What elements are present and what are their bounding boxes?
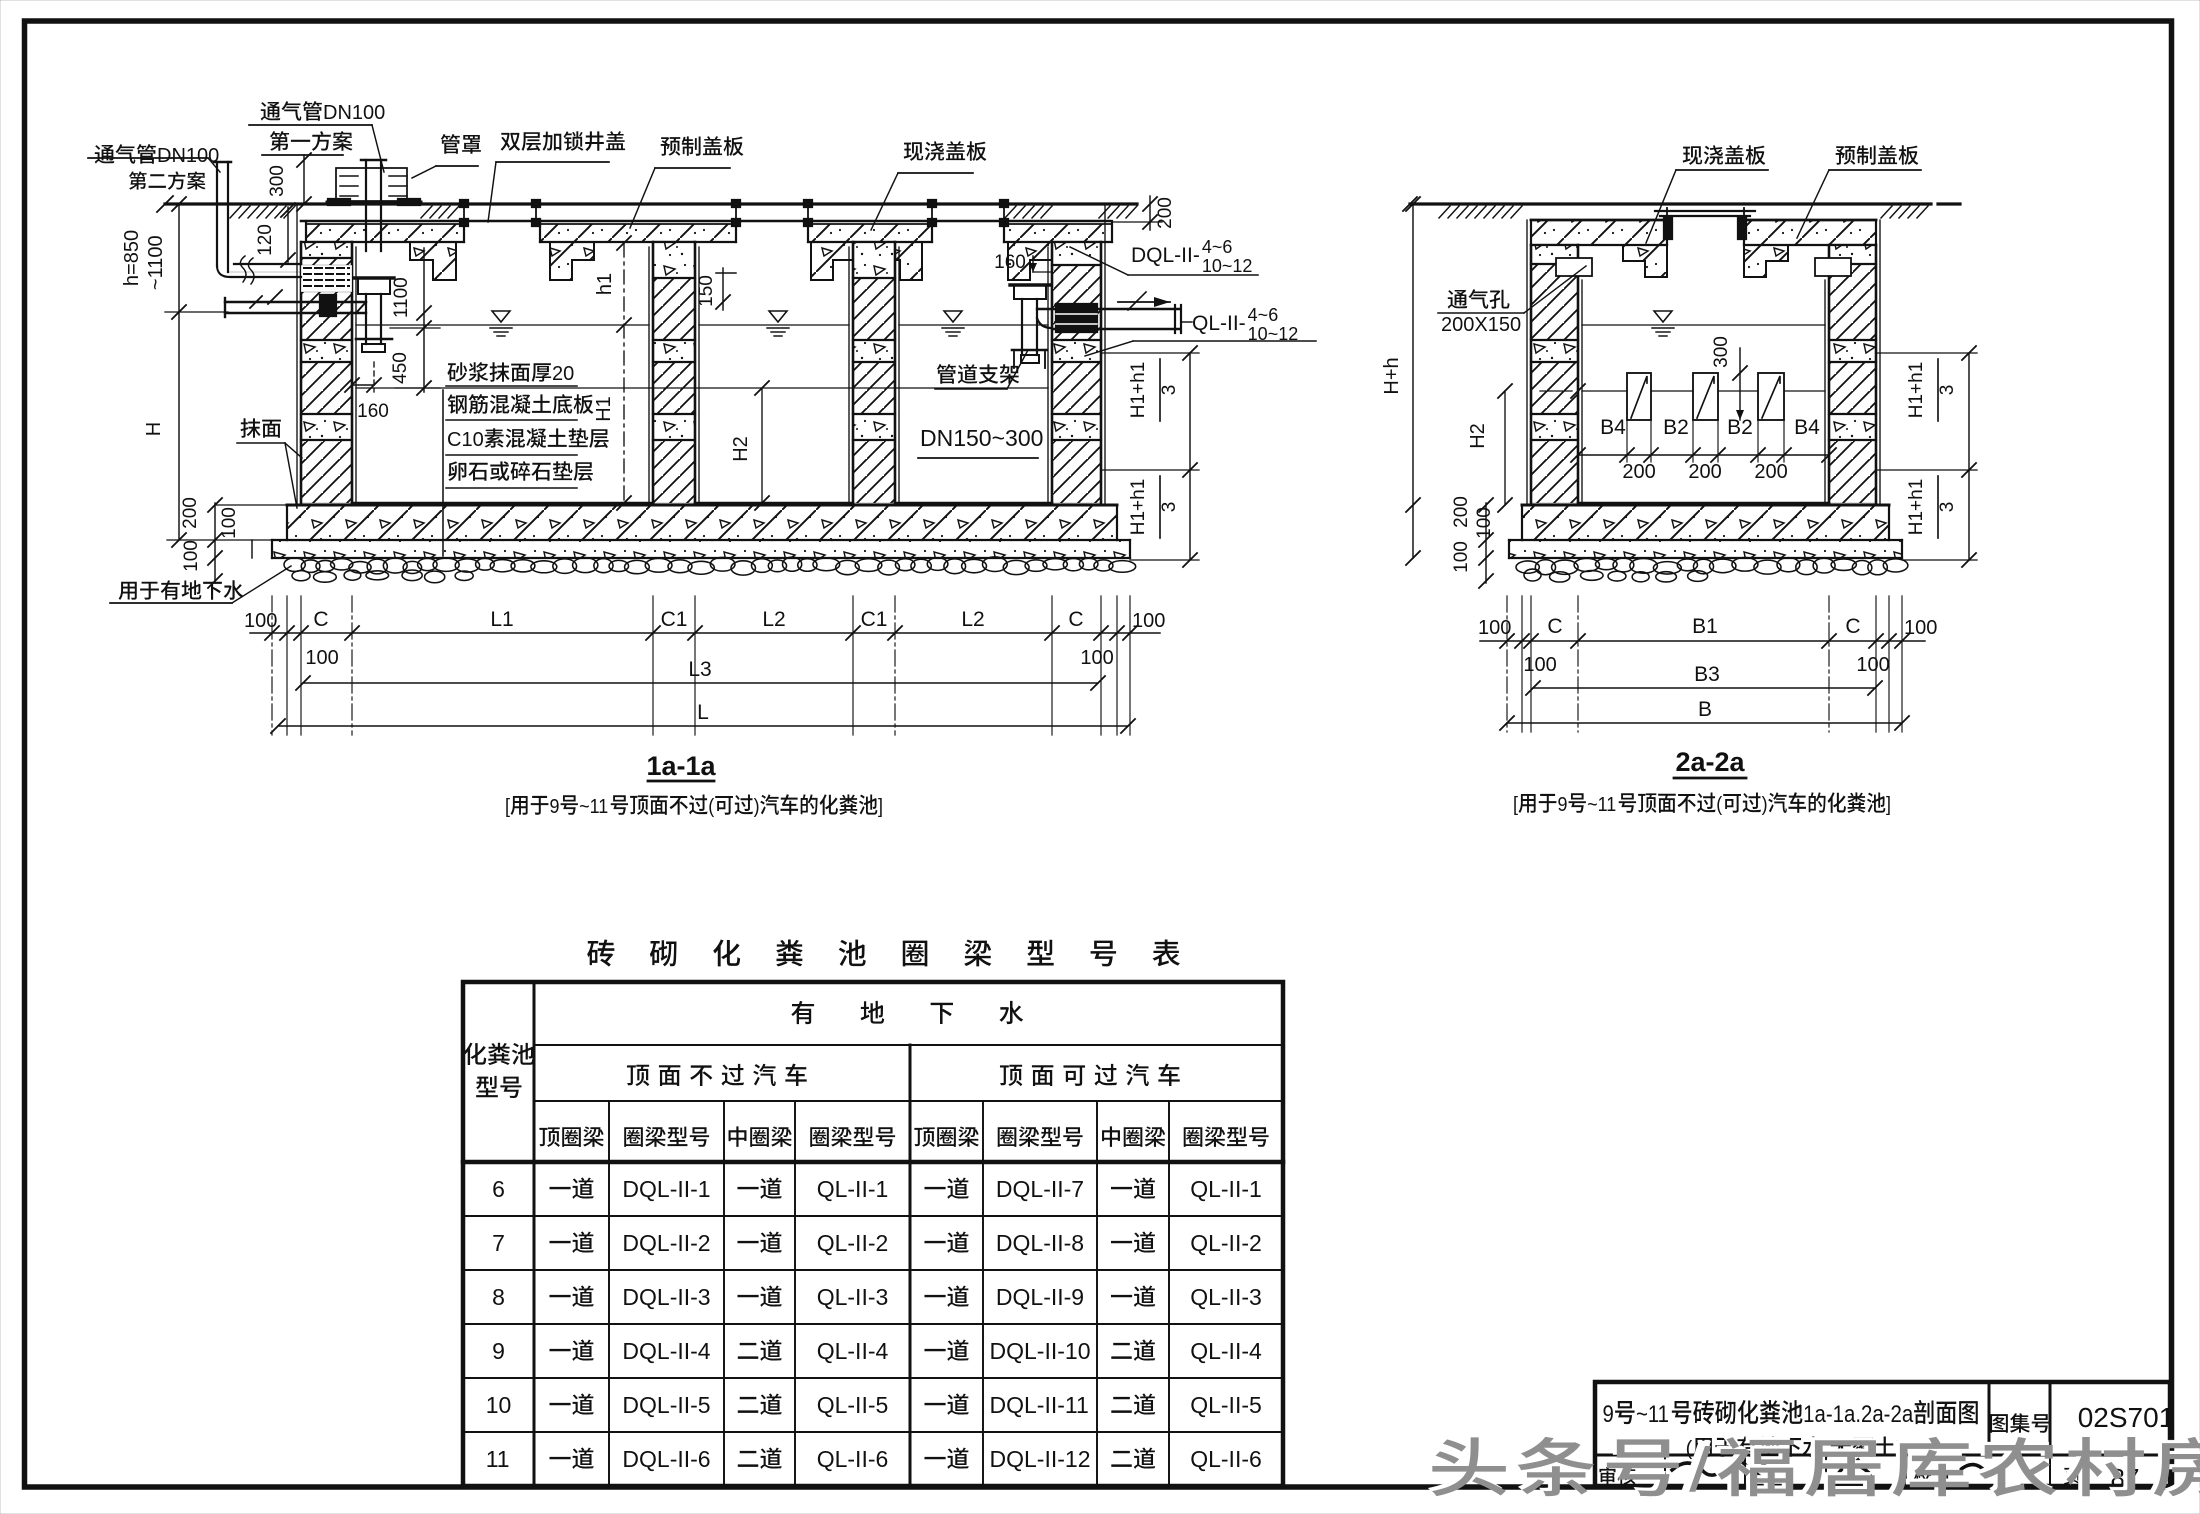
svg-text:L: L	[697, 701, 709, 724]
svg-text:L2: L2	[961, 608, 984, 631]
svg-text:DQL-II-3: DQL-II-3	[622, 1284, 710, 1310]
svg-text:100: 100	[1474, 507, 1495, 539]
svg-text:QL-II-2: QL-II-2	[1190, 1230, 1262, 1256]
svg-text:450: 450	[390, 352, 411, 384]
svg-text:DN100: DN100	[323, 102, 385, 124]
svg-text:H+h: H+h	[1381, 357, 1403, 394]
svg-text:C10: C10	[447, 429, 484, 451]
svg-text:100: 100	[1523, 654, 1556, 676]
svg-text:QL-II-5: QL-II-5	[817, 1392, 889, 1418]
svg-text:200X150: 200X150	[1441, 314, 1521, 336]
svg-text:4~6: 4~6	[1248, 305, 1279, 325]
svg-text:H1+h1: H1+h1	[1128, 479, 1149, 536]
svg-text:QL-II-1: QL-II-1	[1190, 1176, 1262, 1202]
svg-text:L2: L2	[762, 608, 785, 631]
svg-text:100: 100	[305, 647, 338, 669]
svg-text:B3: B3	[1694, 663, 1720, 686]
svg-text:L3: L3	[688, 658, 711, 681]
svg-text:DQL-II-11: DQL-II-11	[990, 1392, 1089, 1418]
svg-text:/: /	[1689, 1436, 1711, 1505]
svg-text:B2: B2	[1663, 416, 1689, 439]
svg-text:300: 300	[1711, 336, 1732, 368]
svg-text:(: (	[708, 796, 715, 818]
svg-text:QL-II-1: QL-II-1	[817, 1176, 889, 1202]
svg-text:20: 20	[552, 363, 574, 385]
svg-text:3: 3	[1937, 385, 1958, 396]
svg-text:~11: ~11	[1636, 1400, 1669, 1427]
svg-text:6: 6	[492, 1176, 505, 1202]
svg-text:QL-II-3: QL-II-3	[1190, 1284, 1262, 1310]
svg-text:160: 160	[357, 401, 389, 422]
svg-text:QL-II-4: QL-II-4	[817, 1338, 889, 1364]
svg-text:100: 100	[219, 507, 240, 539]
svg-text:DQL-II-10: DQL-II-10	[990, 1338, 1091, 1364]
svg-text:DQL-II-5: DQL-II-5	[622, 1392, 710, 1418]
svg-text:C1: C1	[661, 608, 688, 631]
svg-text:02S701: 02S701	[2078, 1402, 2175, 1433]
svg-text:C: C	[1068, 608, 1083, 631]
svg-text:100: 100	[1856, 654, 1889, 676]
svg-text:100: 100	[1451, 541, 1472, 573]
svg-text:QL-II-2: QL-II-2	[817, 1230, 889, 1256]
svg-text:7: 7	[492, 1230, 505, 1256]
svg-text:100: 100	[244, 610, 277, 632]
svg-text:H1+h1: H1+h1	[1906, 362, 1927, 419]
svg-text:2a-2a: 2a-2a	[1675, 747, 1745, 777]
svg-text:B2: B2	[1727, 416, 1753, 439]
svg-text:~1100: ~1100	[145, 235, 167, 290]
svg-text:QL-II-4: QL-II-4	[1190, 1338, 1262, 1364]
svg-text:200: 200	[1451, 496, 1472, 528]
svg-text:3: 3	[1159, 502, 1180, 513]
svg-text:200: 200	[1622, 461, 1655, 483]
svg-text:L1: L1	[490, 608, 513, 631]
svg-text:9: 9	[549, 796, 559, 818]
svg-text:10: 10	[486, 1392, 512, 1418]
svg-text:B1: B1	[1692, 615, 1718, 638]
svg-text:h=850: h=850	[121, 230, 143, 286]
svg-text:200: 200	[1754, 461, 1787, 483]
svg-text:): )	[754, 796, 760, 818]
svg-text:~11: ~11	[1587, 794, 1616, 816]
svg-text:200: 200	[180, 497, 201, 529]
svg-text:~11: ~11	[579, 796, 608, 818]
svg-text:C: C	[1845, 615, 1860, 638]
svg-text:DQL-II-1: DQL-II-1	[622, 1176, 710, 1202]
svg-text:120: 120	[255, 224, 276, 256]
svg-text:]: ]	[878, 796, 883, 818]
svg-text:DQL-II-4: DQL-II-4	[622, 1338, 710, 1364]
svg-text:[: [	[505, 796, 511, 818]
svg-text:200: 200	[1688, 461, 1721, 483]
svg-text:3: 3	[1937, 502, 1958, 513]
svg-text:8: 8	[492, 1284, 505, 1310]
svg-text:C: C	[1547, 615, 1562, 638]
svg-text:1100: 1100	[391, 277, 412, 318]
svg-text:1a-1a: 1a-1a	[646, 751, 716, 781]
svg-text:DQL-II-9: DQL-II-9	[996, 1284, 1084, 1310]
svg-text:H2: H2	[730, 436, 752, 462]
svg-text:100: 100	[1904, 617, 1937, 639]
svg-text:(: (	[1716, 794, 1723, 816]
svg-text:H1: H1	[593, 396, 615, 422]
svg-text:H: H	[143, 422, 165, 436]
svg-text:100: 100	[181, 540, 202, 572]
svg-text:H1+h1: H1+h1	[1906, 479, 1927, 536]
svg-text:QL-II-: QL-II-	[1192, 312, 1246, 335]
svg-text:C: C	[313, 608, 328, 631]
svg-text:B4: B4	[1794, 416, 1820, 439]
svg-text:DQL-II-8: DQL-II-8	[996, 1230, 1084, 1256]
svg-text:DQL-II-12: DQL-II-12	[990, 1446, 1091, 1472]
svg-text:9: 9	[1602, 1400, 1613, 1427]
svg-text:H1+h1: H1+h1	[1128, 362, 1149, 419]
svg-text:9: 9	[492, 1338, 505, 1364]
svg-text:DQL-II-7: DQL-II-7	[996, 1176, 1084, 1202]
svg-text:): )	[1762, 794, 1768, 816]
svg-text:DQL-II-: DQL-II-	[1131, 244, 1200, 267]
svg-text:B4: B4	[1600, 416, 1626, 439]
svg-text:H2: H2	[1467, 423, 1489, 449]
svg-text:DQL-II-6: DQL-II-6	[622, 1446, 710, 1472]
svg-text:10~12: 10~12	[1202, 256, 1253, 276]
svg-text:11: 11	[486, 1446, 510, 1472]
svg-text:100: 100	[1132, 610, 1165, 632]
svg-text:h1: h1	[594, 273, 616, 295]
svg-text:100: 100	[1080, 647, 1113, 669]
svg-text:QL-II-6: QL-II-6	[1190, 1446, 1262, 1472]
svg-text:]: ]	[1886, 794, 1891, 816]
svg-text:9: 9	[1557, 794, 1567, 816]
svg-text:DN150~300: DN150~300	[920, 425, 1043, 451]
svg-text:300: 300	[267, 165, 288, 197]
svg-text:150: 150	[696, 275, 717, 307]
svg-text:C1: C1	[861, 608, 888, 631]
svg-text:4~6: 4~6	[1202, 237, 1233, 257]
svg-text:200: 200	[1155, 197, 1176, 229]
svg-text:B: B	[1698, 698, 1712, 721]
svg-text:160: 160	[994, 252, 1026, 273]
svg-text:QL-II-6: QL-II-6	[817, 1446, 889, 1472]
svg-text:DQL-II-2: DQL-II-2	[622, 1230, 710, 1256]
svg-text:QL-II-3: QL-II-3	[817, 1284, 889, 1310]
svg-text:3: 3	[1159, 385, 1180, 396]
svg-text:QL-II-5: QL-II-5	[1190, 1392, 1262, 1418]
svg-text:[: [	[1513, 794, 1519, 816]
svg-text:100: 100	[1478, 617, 1511, 639]
svg-text:DN100: DN100	[157, 145, 219, 167]
svg-text:1a-1a.2a-2a: 1a-1a.2a-2a	[1803, 1400, 1914, 1427]
